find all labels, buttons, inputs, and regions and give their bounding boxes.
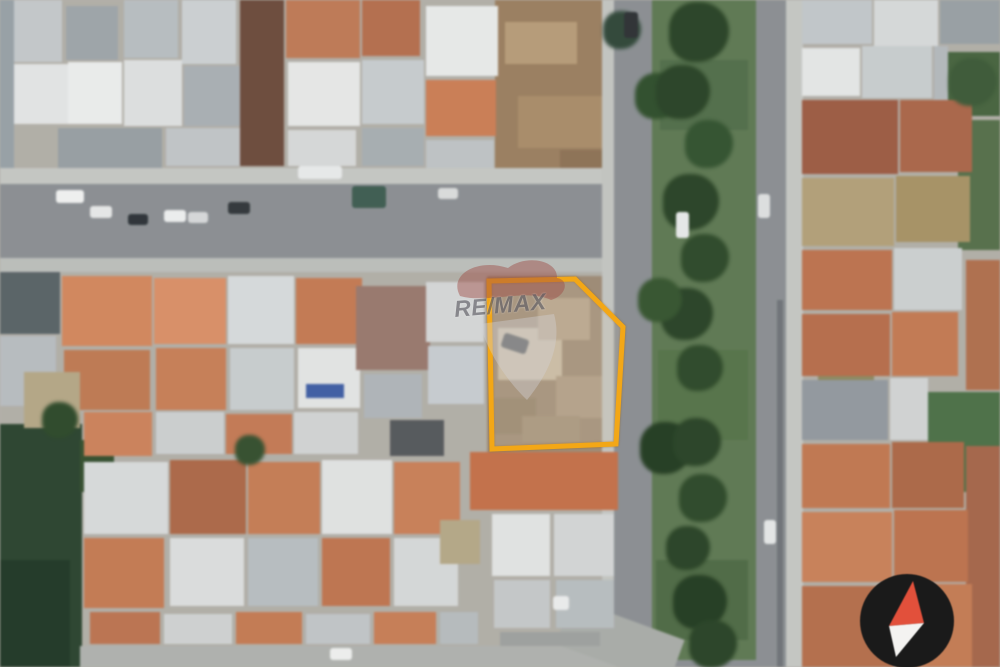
- satellite-map[interactable]: RE/MAX: [0, 0, 1000, 667]
- compass-icon: [850, 564, 964, 667]
- lot-boundary-polygon: [489, 279, 623, 449]
